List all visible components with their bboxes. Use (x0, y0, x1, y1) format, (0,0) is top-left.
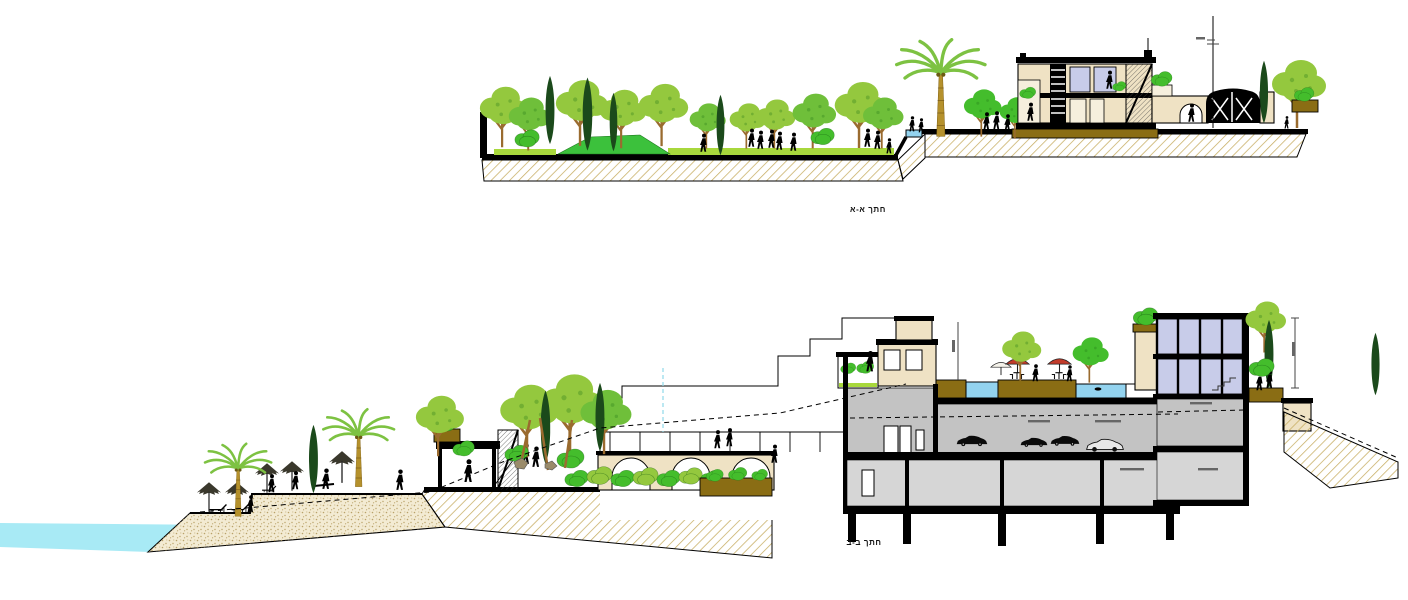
interior-door (884, 426, 898, 454)
foundation-pier (1096, 514, 1104, 544)
person-figure (874, 131, 881, 149)
tiny-label-mark (1196, 37, 1205, 40)
terrace-planter (1249, 388, 1283, 402)
tiny-label-mark (1198, 468, 1218, 470)
cut-basement-level (847, 460, 1180, 506)
penthouse-roof-slab (894, 316, 934, 321)
interior-niche (916, 430, 924, 450)
terrace-table (1010, 373, 1024, 379)
wall-shrub (1151, 72, 1172, 87)
foundation-pier (903, 514, 911, 544)
interior-wall (933, 384, 938, 454)
section-bb-caption: חתך ב-ב (846, 538, 881, 547)
person-figure (1284, 116, 1288, 128)
tiny-label-mark (1120, 468, 1144, 470)
tower-roof-slab (1153, 313, 1249, 319)
beach-parasol (197, 482, 221, 511)
terrace-umbrella-red (1048, 359, 1071, 373)
cypress-tree (717, 95, 725, 155)
wall-planter-box (1152, 85, 1172, 96)
foundation-slab (845, 506, 1180, 514)
palm-tree (897, 40, 985, 137)
person-figure (292, 471, 299, 489)
roof-planter (998, 380, 1076, 398)
person-figure (864, 129, 871, 147)
earth-hatch-left (482, 160, 903, 181)
roof-stub (1020, 53, 1026, 57)
roof-tree (1073, 337, 1109, 382)
drawing-sheet: חתך א-א (0, 0, 1408, 600)
sections-canvas: חתך א-א (0, 0, 1408, 600)
villa-window (884, 350, 900, 370)
interior-door (900, 426, 911, 454)
penthouse (896, 320, 932, 340)
tiny-label-mark (952, 340, 955, 352)
beach-parasol (329, 451, 355, 483)
grass-strip-1 (494, 149, 556, 155)
shrub (515, 130, 539, 147)
tower-right-wall (1243, 313, 1249, 506)
roof-stub (1144, 50, 1152, 57)
roof-planter (936, 380, 966, 398)
swimmer-figure (1095, 387, 1102, 390)
tiny-label-mark (1190, 402, 1212, 404)
basement-wall (905, 460, 909, 506)
person-figure (268, 474, 274, 492)
winter-garden-slab (836, 352, 880, 357)
tree-cluster-middle (690, 82, 904, 155)
tower-cut-level1 (1157, 399, 1245, 446)
palm-tree (323, 409, 394, 486)
stair-rungs (1051, 70, 1065, 113)
roof-slab (1016, 57, 1156, 63)
courtyard-aa (1151, 16, 1326, 128)
terrace-table (1052, 373, 1066, 379)
person-figure (768, 130, 775, 148)
basement-wall (1000, 460, 1004, 506)
door-lower (1070, 99, 1086, 123)
exercise-bar (314, 484, 334, 486)
cut-garage-level (935, 404, 1180, 454)
tower-section-bb (1133, 302, 1299, 507)
terrace-slab (1281, 398, 1313, 403)
basement-wall (1100, 460, 1104, 506)
roof-pool (1076, 384, 1126, 398)
person-figure (1066, 365, 1072, 381)
cypress-tree (1371, 333, 1379, 395)
person-figure (464, 459, 472, 482)
tiny-label-mark (1028, 420, 1050, 422)
soil-strip-under-building (1012, 129, 1158, 138)
tower-side-wall (1135, 330, 1159, 390)
tower-slab (1153, 446, 1249, 452)
person-figure (757, 131, 764, 149)
person-figure (1032, 364, 1038, 381)
tower-slab (1153, 394, 1249, 399)
shrub (811, 128, 834, 144)
person-figure (776, 132, 783, 150)
section-aa-caption: חתך א-א (850, 205, 886, 214)
planter-box (1292, 100, 1318, 112)
tower-base-slab (1153, 500, 1249, 506)
stair-core (1050, 64, 1066, 123)
underbrush (557, 449, 584, 468)
cypress-tree (546, 76, 555, 144)
basement-door (862, 470, 874, 496)
cypress-tree (309, 425, 318, 493)
person-figure (532, 446, 539, 466)
tiny-label-mark (1292, 342, 1295, 356)
hedge-shrub (565, 470, 588, 486)
foundation-pier (998, 514, 1006, 546)
foundation-pier (1166, 514, 1174, 540)
beach-parasol (280, 461, 304, 490)
window-upper (1070, 67, 1090, 92)
building-section-bb (836, 316, 1180, 546)
person-figure (396, 469, 403, 489)
tiny-label-mark (1095, 420, 1121, 422)
slope-hatch-right (1284, 412, 1398, 488)
garage-floor-slab (845, 452, 1180, 460)
deck-slab (933, 398, 1180, 404)
floor-slab (1016, 123, 1156, 129)
building-section-aa (1016, 38, 1156, 129)
section-aa-drawing: חתך א-א (480, 16, 1326, 214)
arch-wall-cap (596, 451, 776, 455)
person-figure (909, 116, 914, 131)
deciduous-tree (639, 84, 689, 146)
door-lower (1090, 99, 1104, 123)
villa-window (906, 350, 922, 370)
beach-sand-stipple (148, 494, 445, 552)
tower-cut-level2 (1157, 452, 1245, 500)
boundary-post (480, 112, 487, 158)
roof-pool (966, 382, 998, 398)
section-bb-drawing: חתך ב-ב (0, 302, 1398, 559)
